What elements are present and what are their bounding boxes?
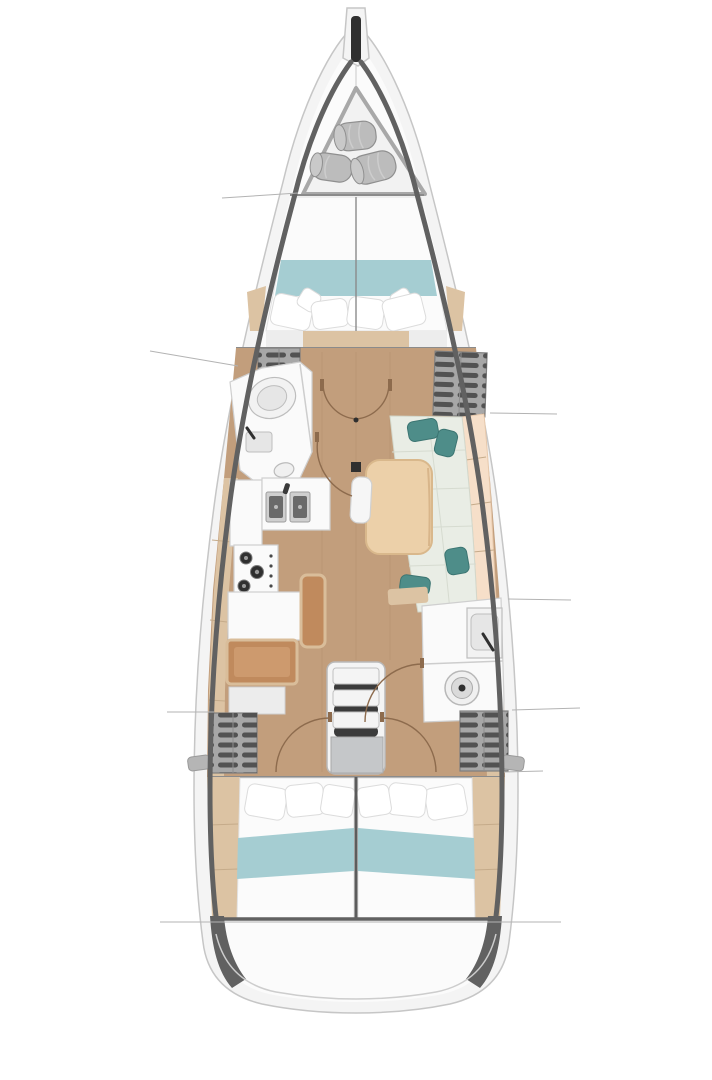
door-hinge [315,432,319,442]
sail-roll [333,120,378,152]
door-meeting-point [354,418,359,423]
door-hinge [420,658,424,668]
section-line [508,599,571,600]
locker-aft-port [209,713,257,773]
deck-fitting-starboard [501,755,525,772]
door-hinge [328,712,332,722]
teal-throw-pillow [444,546,470,575]
pillow [346,296,386,331]
section-line [490,413,557,414]
aft-head-toilet-drain [459,685,466,692]
pillow [244,783,289,821]
nav-desk-top [234,647,290,677]
floorplan-page [0,0,712,1080]
nav-under-cabinet [229,687,285,714]
stair-tread [333,690,379,706]
mast-step [351,462,361,472]
stairs-landing [331,737,383,773]
aft-cabins [207,777,505,919]
section-line [150,351,238,366]
pillow [424,783,469,821]
companionway-stairs [327,662,385,774]
pillow [310,298,350,331]
section-line [512,708,580,710]
door-hinge [388,379,392,391]
door-hinge [380,712,384,722]
stair-tread [333,712,379,728]
cabin-entry-floor [303,331,409,348]
head-sink [246,432,272,452]
nav-seat [301,575,325,647]
door-hinge [320,379,324,391]
galley-lower-counter [228,592,302,640]
pillow [356,784,392,819]
pillow [320,784,356,819]
pillow [284,782,325,818]
pillow [386,782,427,818]
stair-tread [333,668,379,684]
yacht-floorplan-diagram [0,0,712,1080]
deck-fitting-port [187,755,211,772]
aft-head [422,598,504,722]
galley-fridge-counter [230,480,262,546]
salon-table [366,460,432,554]
salon-stool [350,477,372,524]
settee-base-trim [387,587,428,606]
anchor-channel [351,16,361,62]
